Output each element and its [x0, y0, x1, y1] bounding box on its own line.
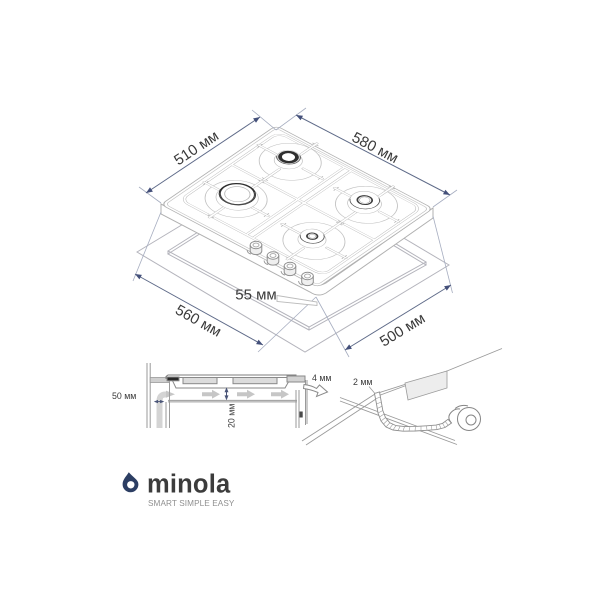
svg-text:510 мм: 510 мм — [171, 127, 222, 169]
svg-text:580 мм: 580 мм — [349, 129, 401, 167]
svg-text:minola: minola — [147, 471, 231, 499]
svg-text:55 мм: 55 мм — [235, 287, 276, 304]
svg-text:560 мм: 560 мм — [172, 302, 224, 341]
svg-text:50 мм: 50 мм — [112, 391, 136, 401]
svg-text:SMART SIMPLE EASY: SMART SIMPLE EASY — [148, 499, 235, 508]
svg-text:2 мм: 2 мм — [353, 377, 372, 387]
svg-text:500 мм: 500 мм — [377, 310, 428, 351]
svg-text:20 мм: 20 мм — [227, 404, 237, 428]
svg-text:4 мм: 4 мм — [312, 373, 331, 383]
